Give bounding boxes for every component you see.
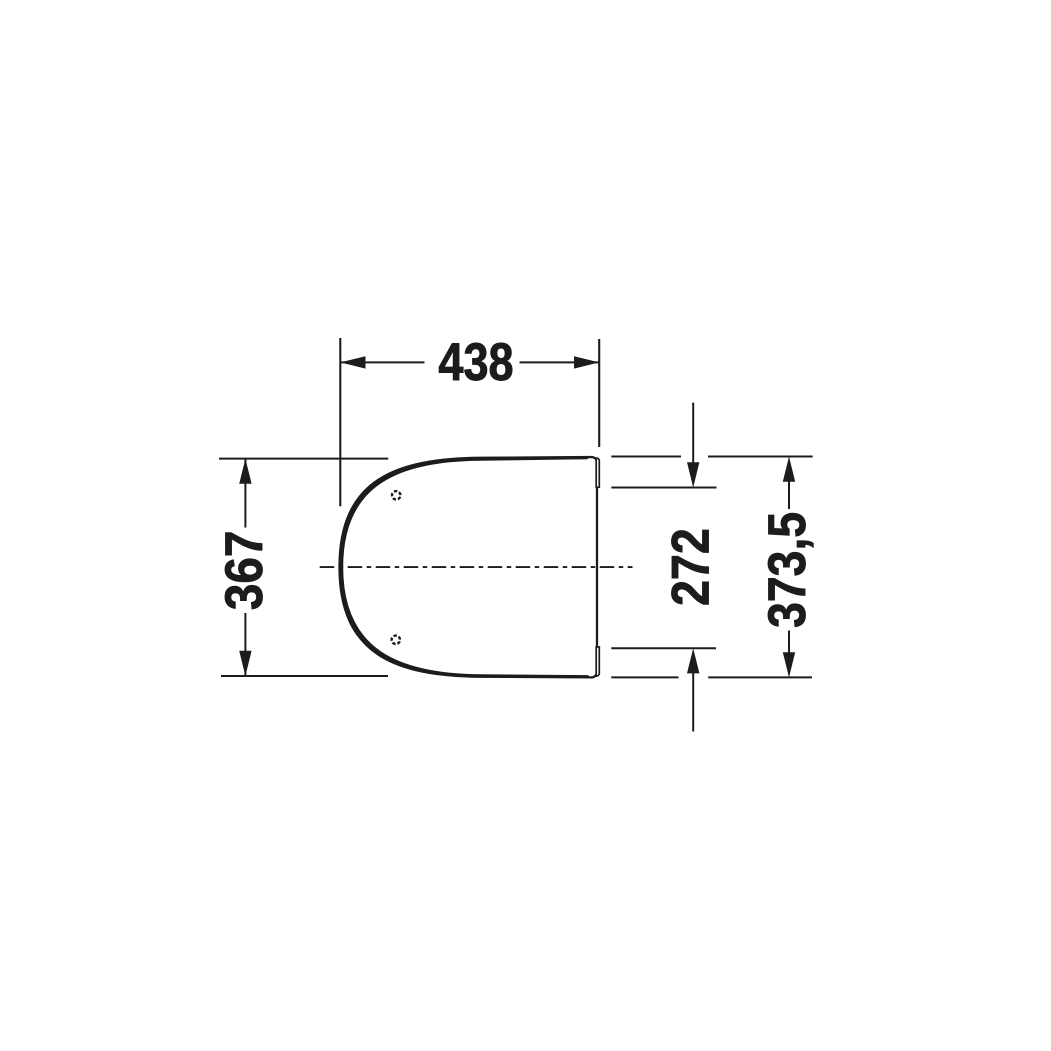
svg-text:373,5: 373,5 [757,512,817,628]
svg-text:438: 438 [438,333,513,392]
svg-text:272: 272 [661,528,720,606]
svg-text:367: 367 [214,531,274,611]
